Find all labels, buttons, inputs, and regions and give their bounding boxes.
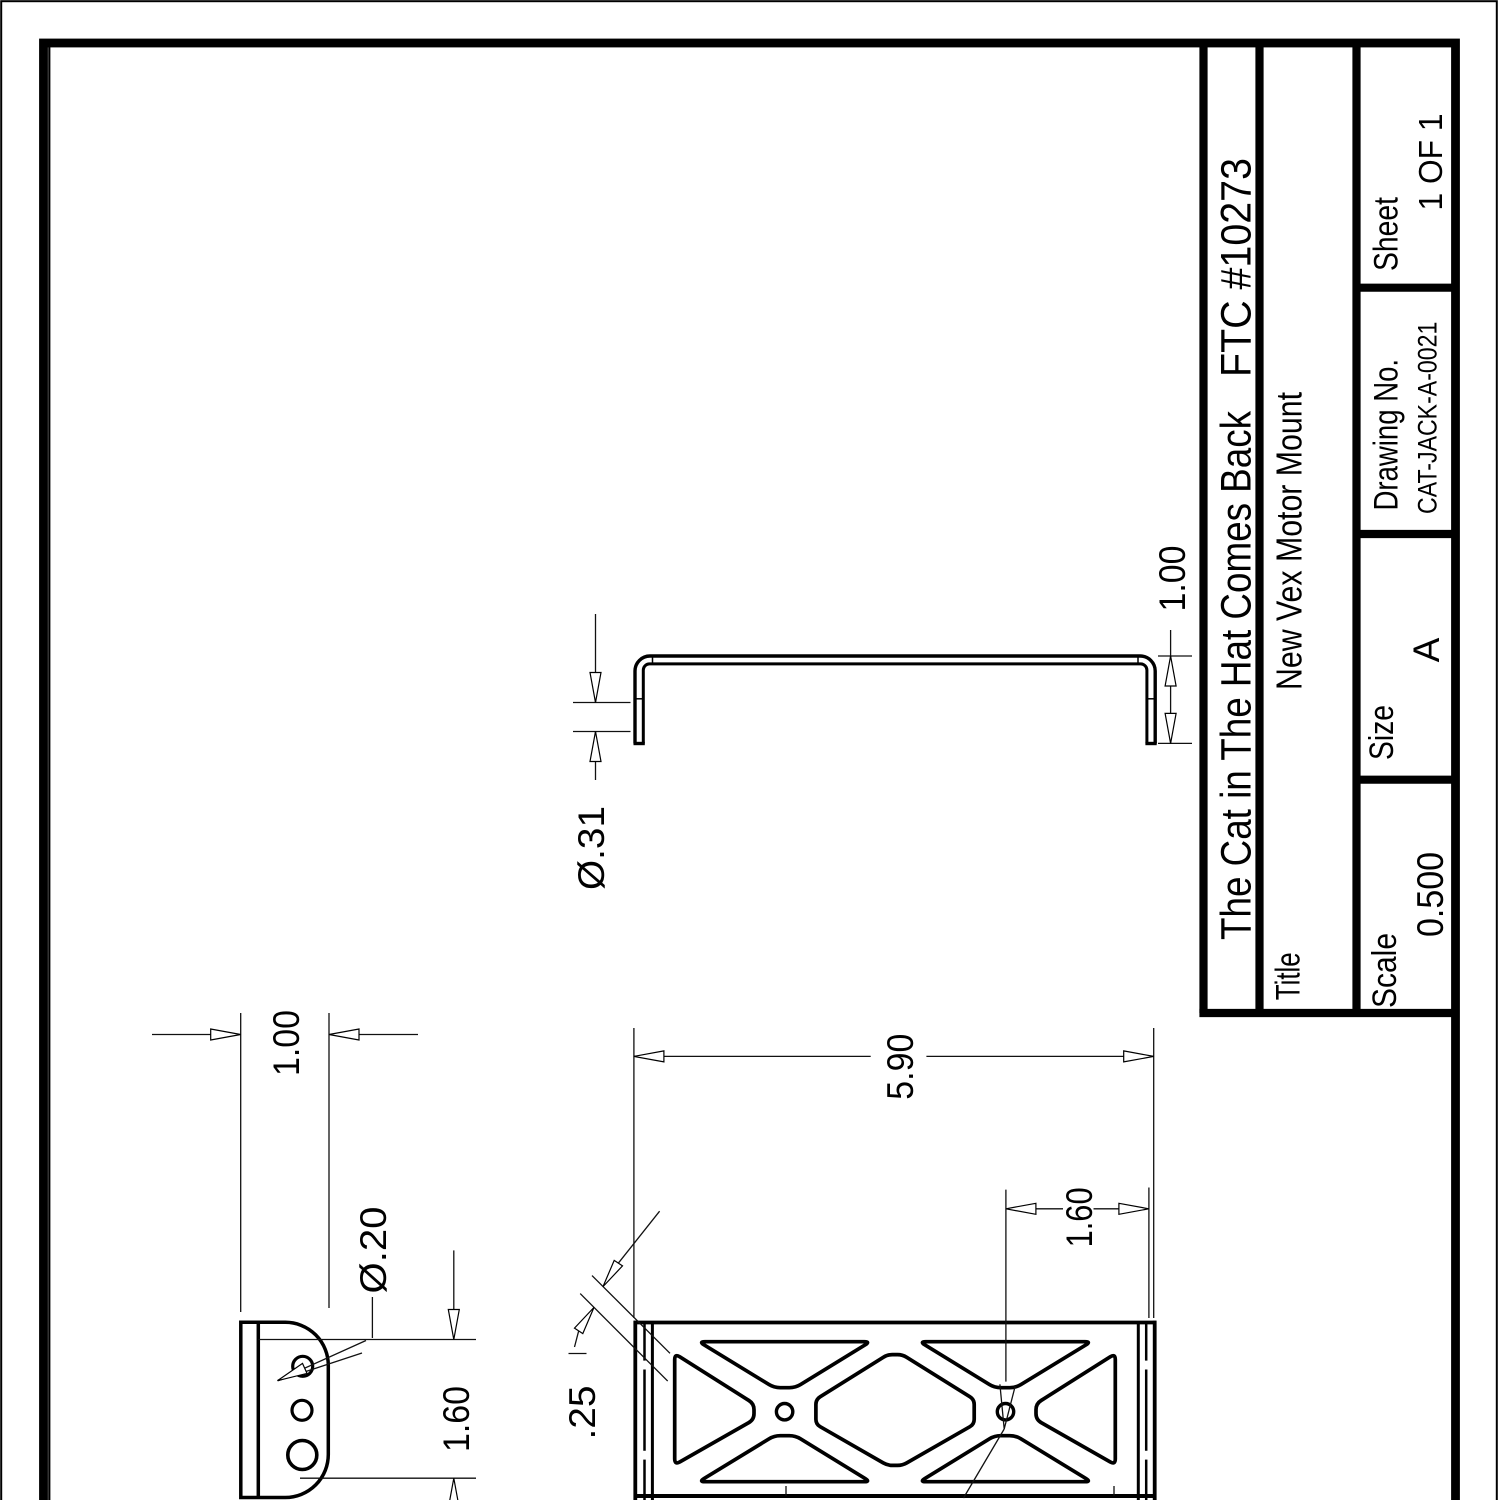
svg-text:Ø.31: Ø.31 [571, 806, 612, 890]
svg-text:5.90: 5.90 [880, 1034, 921, 1100]
svg-text:Title: Title [1270, 952, 1308, 1000]
svg-text:0.500: 0.500 [1410, 852, 1451, 937]
svg-text:.25: .25 [562, 1386, 603, 1440]
svg-text:Scale: Scale [1366, 933, 1404, 1008]
svg-text:New Vex Motor Mount: New Vex Motor Mount [1269, 392, 1310, 690]
svg-text:1 OF 1: 1 OF 1 [1412, 114, 1449, 211]
svg-text:1.60: 1.60 [436, 1386, 477, 1452]
svg-text:1.00: 1.00 [266, 1010, 307, 1076]
svg-text:Ø.20: Ø.20 [353, 1207, 394, 1294]
svg-text:CAT-JACK-A-0021: CAT-JACK-A-0021 [1412, 322, 1442, 514]
svg-text:Size: Size [1363, 705, 1401, 760]
svg-text:Sheet: Sheet [1368, 197, 1406, 271]
svg-text:1.00: 1.00 [1152, 546, 1193, 612]
svg-text:The Cat in The Hat Comes Back: The Cat in The Hat Comes Back [1213, 411, 1261, 940]
svg-text:A: A [1406, 637, 1447, 662]
svg-text:Drawing No.: Drawing No. [1368, 359, 1406, 511]
svg-text:1.60: 1.60 [1059, 1187, 1100, 1247]
svg-text:FTC #10273: FTC #10273 [1213, 158, 1261, 377]
